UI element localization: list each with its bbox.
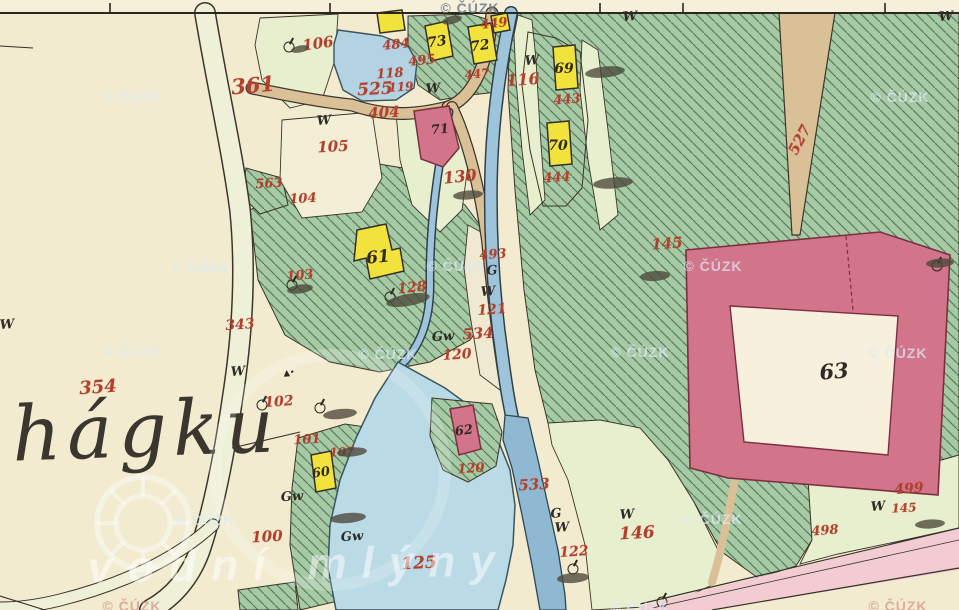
farm-63-courtyard — [730, 306, 898, 455]
building-69 — [553, 45, 578, 90]
sheet-margin — [0, 0, 959, 13]
cadastral-map-canvas[interactable] — [0, 0, 959, 610]
farmstead-63 — [686, 232, 950, 495]
building-70 — [547, 121, 572, 166]
cadastral-map-viewport[interactable]: hágku 3611064844951181195254044494471164… — [0, 0, 959, 610]
field-104-105 — [280, 112, 382, 218]
building-60 — [311, 451, 336, 492]
building-small-b — [491, 13, 510, 33]
